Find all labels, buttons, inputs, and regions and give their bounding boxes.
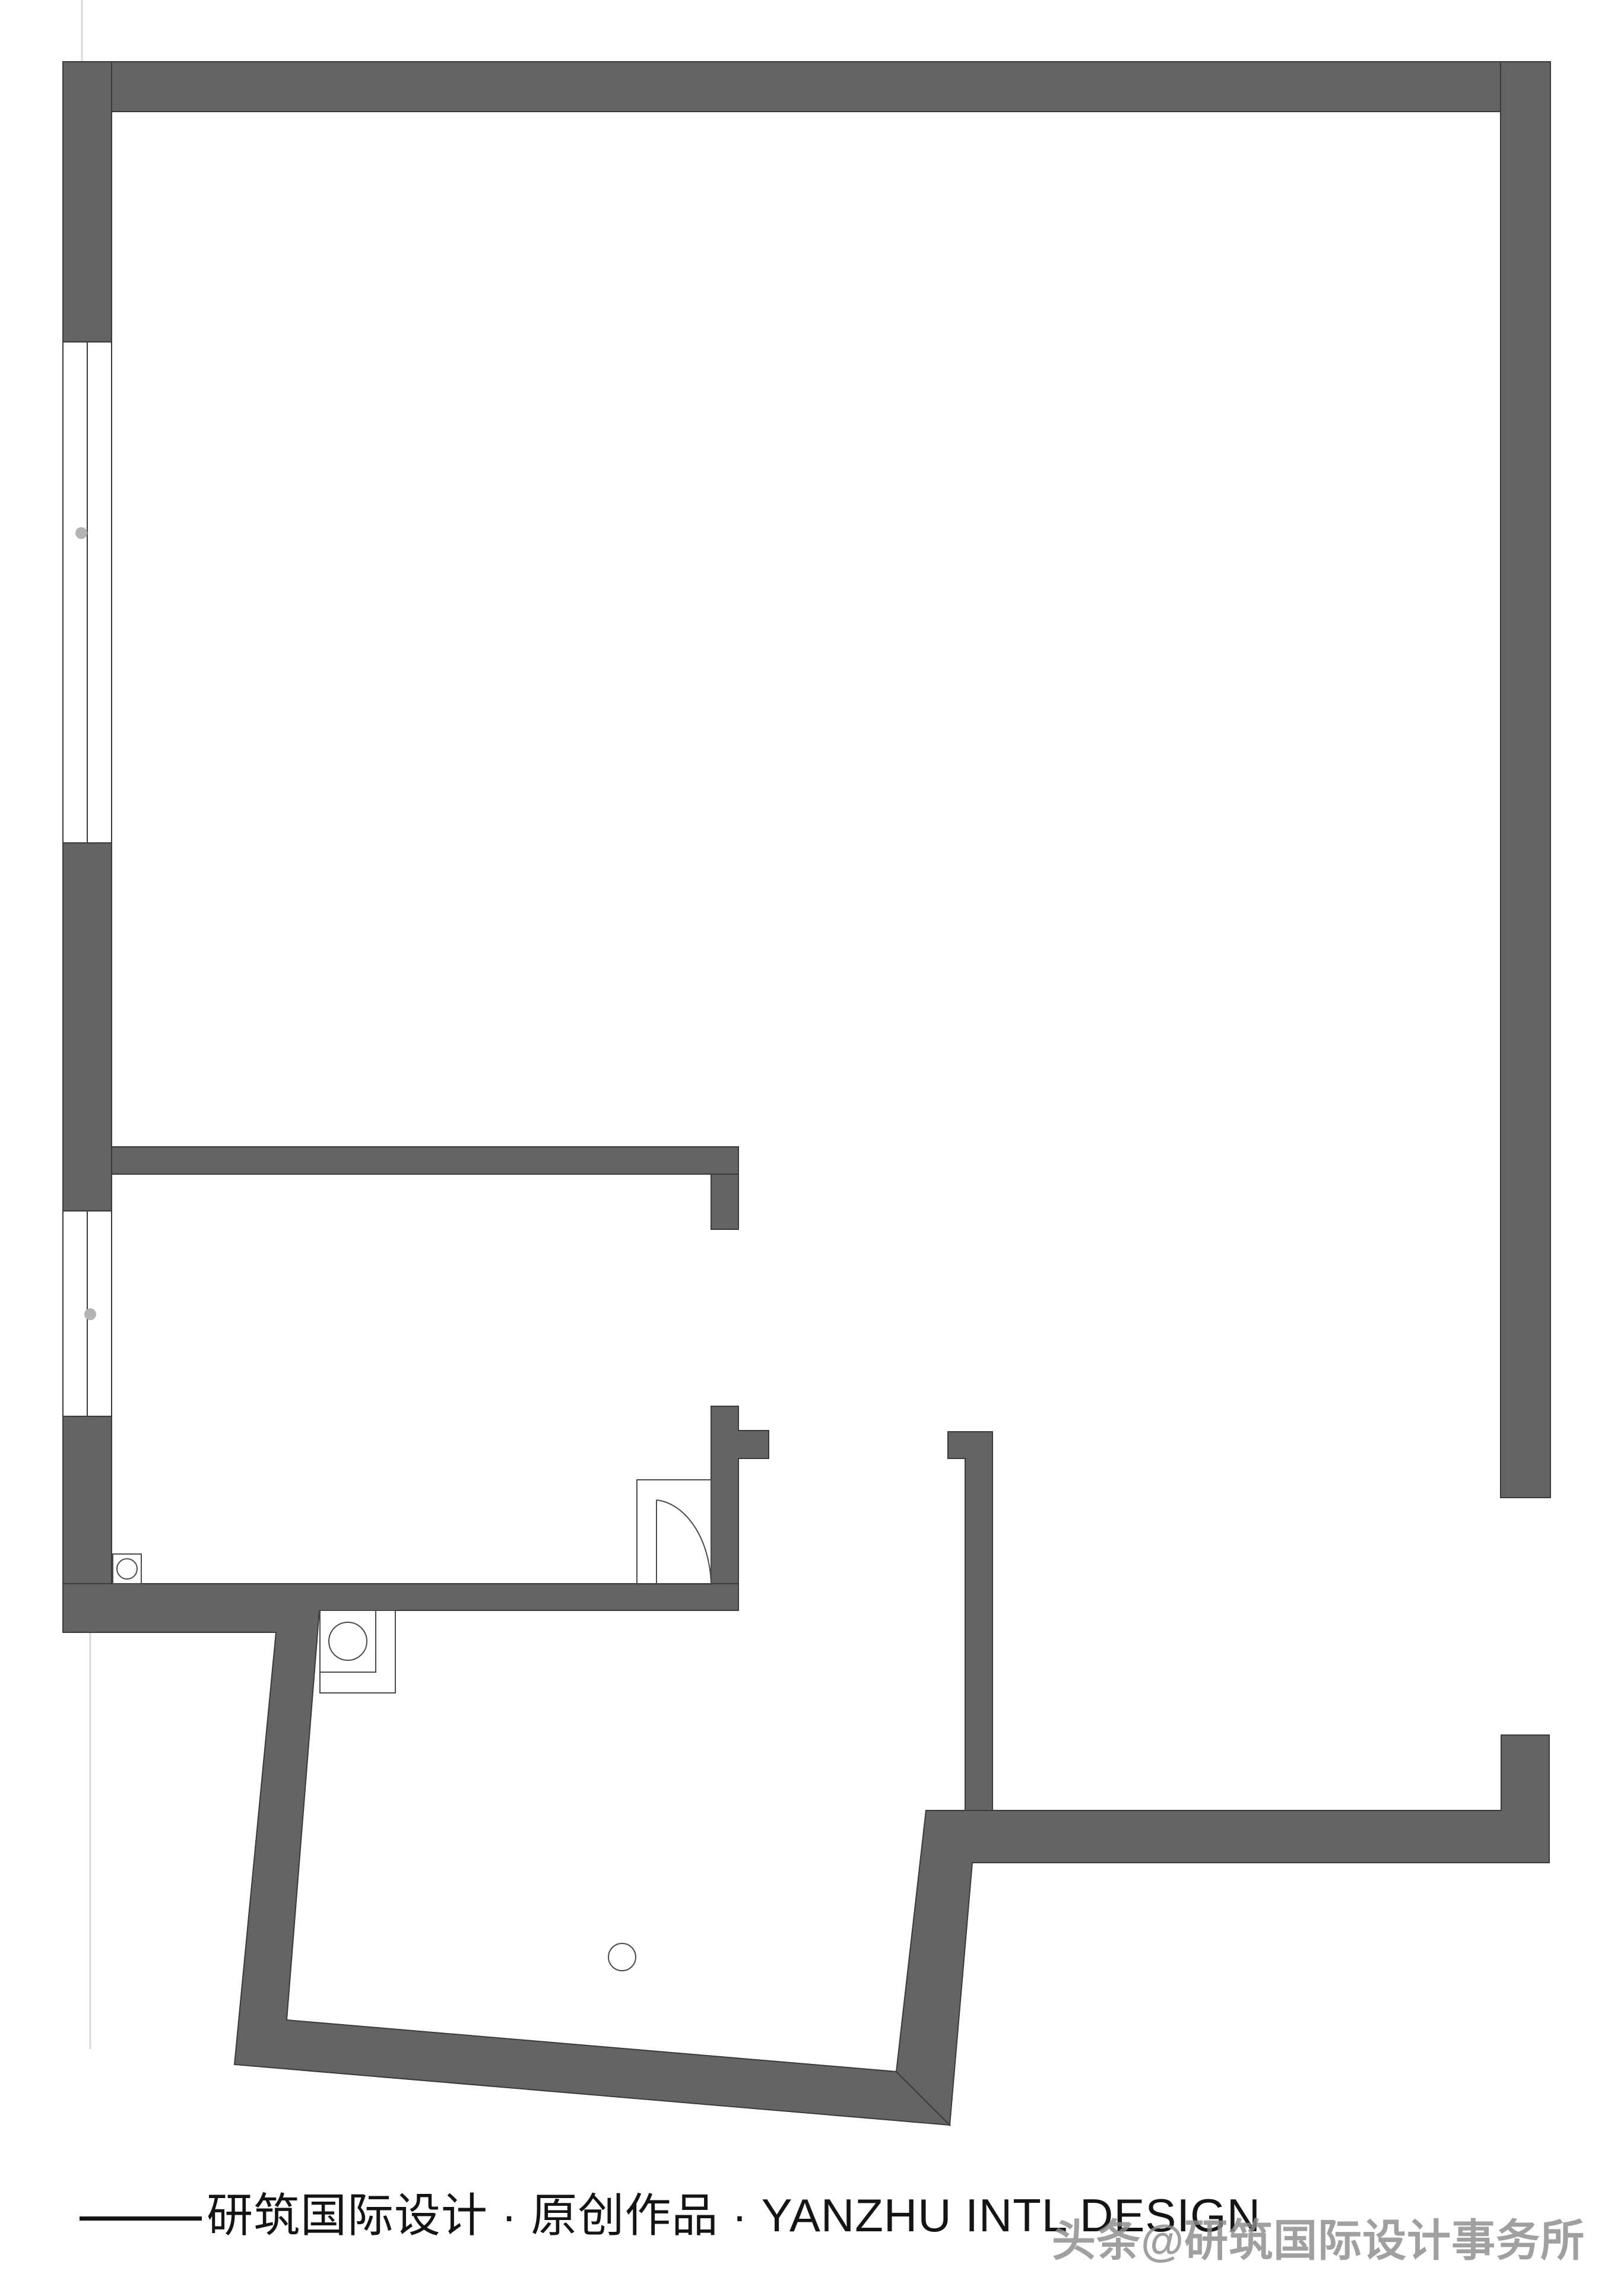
watermark-text: 头条@研筑国际设计事务所 — [1052, 2215, 1585, 2266]
window-1-dot — [75, 527, 87, 539]
wall-left-upper — [63, 62, 112, 342]
wall-bath-right-lower — [896, 1735, 1549, 2125]
floorplan-page: 研筑国际设计 · 原创作品 · YANZHU INTL DESIGN 头条@研筑… — [0, 0, 1608, 2296]
wall-partition-right — [948, 1432, 992, 1810]
wall-left-middle — [63, 843, 112, 1211]
wall-bedroom-top — [112, 1147, 738, 1174]
wall-top — [63, 62, 1550, 112]
door-frame — [637, 1480, 711, 1584]
wall-bedroom-door-stub — [711, 1174, 738, 1229]
floorplan-drawing — [0, 0, 1608, 2296]
wall-bath-left-bottom — [63, 1584, 950, 2125]
wall-right — [1501, 62, 1550, 1498]
floor-drain-circle — [608, 1943, 636, 1971]
wall-partition-left — [711, 1406, 769, 1610]
door-swing-arc — [656, 1500, 711, 1583]
window-2-dot — [84, 1308, 96, 1320]
credit-dash-line — [80, 2216, 202, 2221]
